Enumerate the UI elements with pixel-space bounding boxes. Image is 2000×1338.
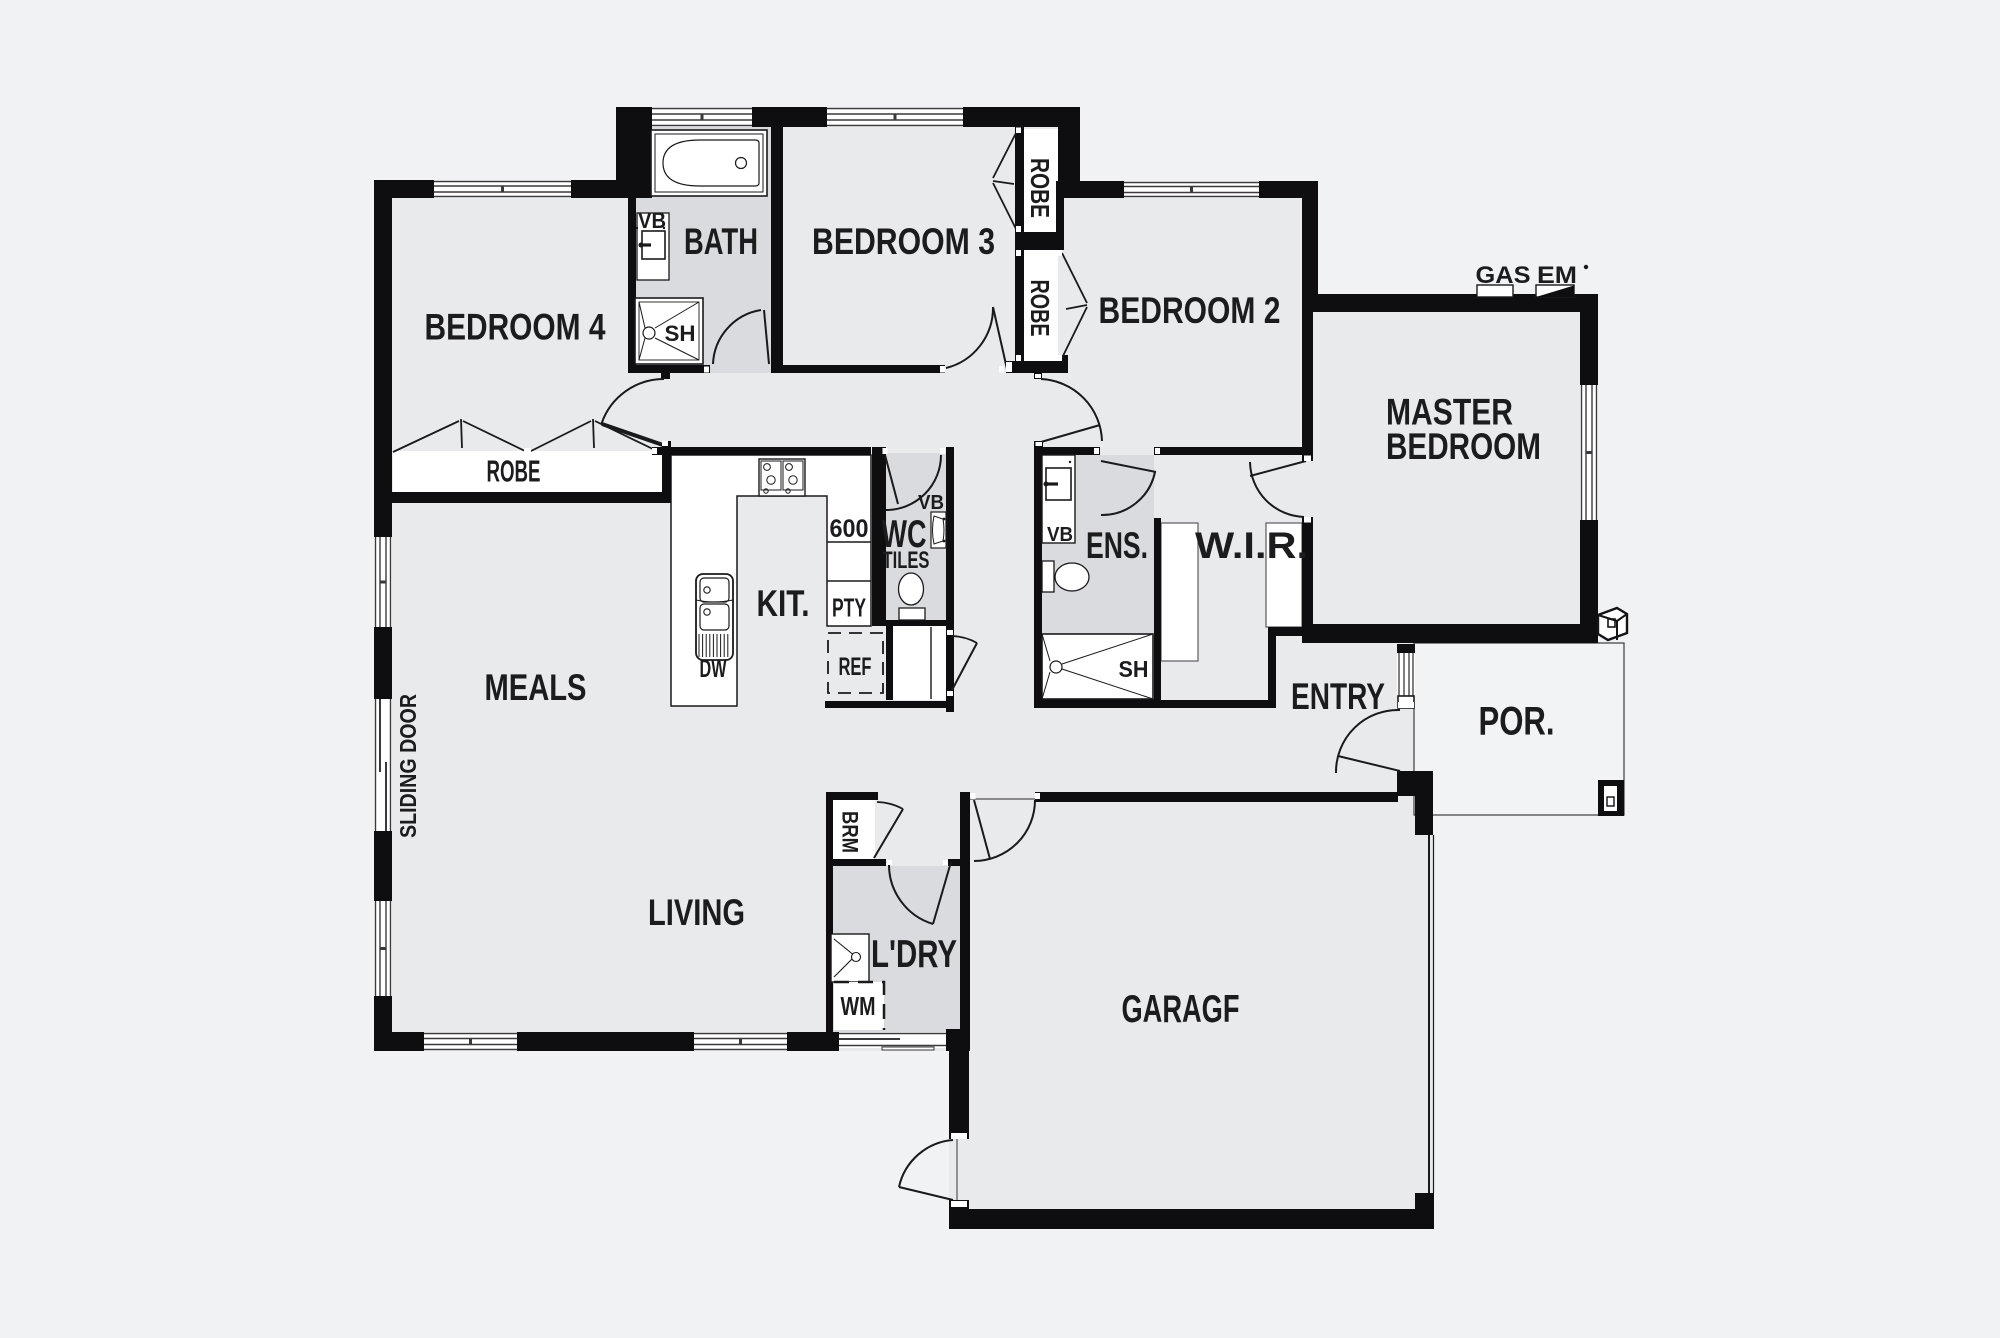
svg-text:ROBE: ROBE: [1025, 280, 1055, 337]
svg-text:PTY: PTY: [832, 593, 866, 623]
svg-text:WM: WM: [841, 991, 876, 1021]
svg-text:GAS: GAS: [1476, 262, 1531, 289]
svg-text:BEDROOM 3: BEDROOM 3: [812, 221, 995, 262]
svg-text:600: 600: [830, 515, 869, 543]
svg-text:VB: VB: [1047, 524, 1073, 546]
svg-text:POR.: POR.: [1479, 700, 1555, 744]
svg-text:DW: DW: [700, 655, 727, 683]
svg-text:TILES: TILES: [883, 547, 930, 574]
svg-text:EM: EM: [1537, 262, 1577, 289]
svg-text:REF: REF: [839, 653, 872, 681]
svg-text:ROBE: ROBE: [1025, 158, 1055, 218]
svg-text:SH: SH: [665, 321, 696, 346]
svg-text:W.I.R.: W.I.R.: [1195, 525, 1308, 566]
svg-text:L'DRY: L'DRY: [871, 933, 957, 976]
svg-text:BEDROOM: BEDROOM: [1386, 426, 1541, 467]
svg-text:BRM: BRM: [838, 811, 863, 853]
svg-text:MEALS: MEALS: [485, 667, 587, 708]
svg-text:ENTRY: ENTRY: [1291, 676, 1385, 717]
svg-text:KIT.: KIT.: [757, 583, 810, 624]
svg-text:ROBE: ROBE: [487, 453, 541, 488]
svg-text:VB: VB: [638, 208, 666, 233]
svg-text:BEDROOM 2: BEDROOM 2: [1099, 290, 1281, 331]
svg-text:SH: SH: [1119, 656, 1149, 682]
svg-text:VB: VB: [918, 492, 944, 514]
svg-text:LIVING: LIVING: [648, 892, 745, 933]
svg-text:SLIDING DOOR: SLIDING DOOR: [395, 694, 421, 838]
svg-text:BATH: BATH: [684, 221, 758, 262]
svg-text:ENS.: ENS.: [1086, 525, 1148, 566]
svg-text:GARAGF: GARAGF: [1122, 988, 1240, 1031]
svg-text:BEDROOM 4: BEDROOM 4: [425, 307, 606, 348]
